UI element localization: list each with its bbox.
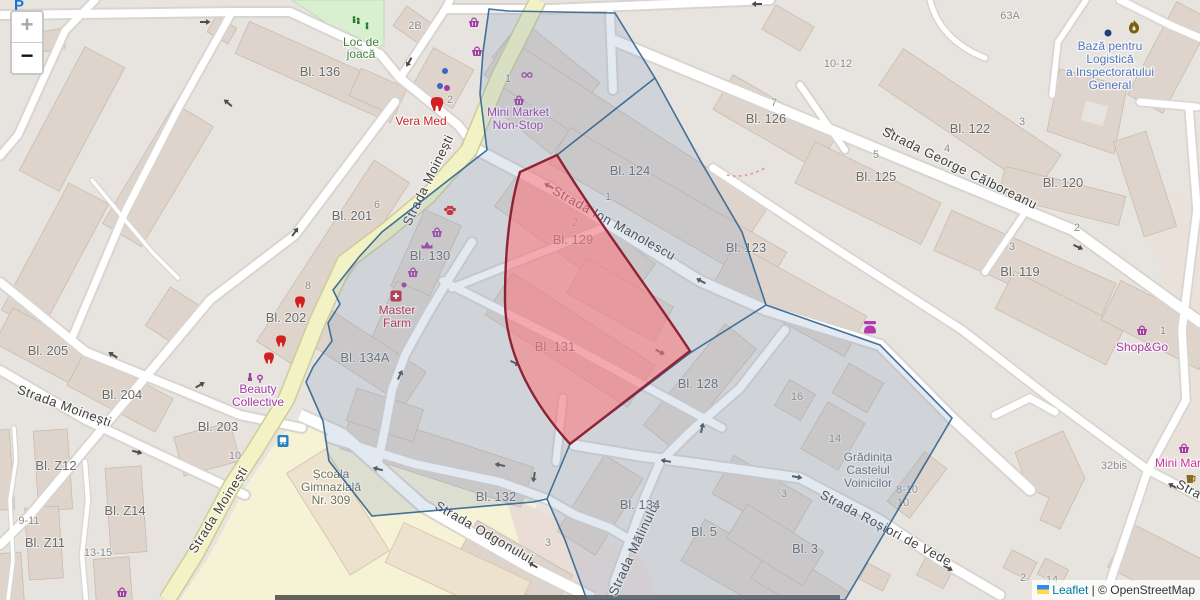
svg-text:2: 2 xyxy=(1020,572,1026,584)
svg-text:General: General xyxy=(1089,78,1132,92)
svg-text:Bl. 136: Bl. 136 xyxy=(300,64,340,79)
svg-text:3: 3 xyxy=(1019,116,1025,128)
svg-text:Bl. 205: Bl. 205 xyxy=(28,343,68,358)
svg-text:Bl. 203: Bl. 203 xyxy=(198,419,238,434)
svg-text:Bl. 119: Bl. 119 xyxy=(1000,264,1040,279)
svg-text:Bl. Z14: Bl. Z14 xyxy=(104,503,145,518)
svg-text:9-11: 9-11 xyxy=(18,515,39,527)
svg-text:Beauty: Beauty xyxy=(239,382,276,396)
svg-text:Bl. 202: Bl. 202 xyxy=(266,310,306,325)
svg-text:Logistică: Logistică xyxy=(1086,52,1134,66)
svg-text:4: 4 xyxy=(944,143,950,155)
svg-text:13-15: 13-15 xyxy=(84,547,112,559)
svg-text:6: 6 xyxy=(374,199,380,211)
svg-text:1: 1 xyxy=(1160,325,1166,337)
svg-text:Mini Mark: Mini Mark xyxy=(1155,456,1200,470)
svg-text:2: 2 xyxy=(1074,222,1080,234)
svg-text:8: 8 xyxy=(305,280,311,292)
svg-text:Bază pentru: Bază pentru xyxy=(1078,39,1143,53)
svg-text:2B: 2B xyxy=(408,20,421,32)
svg-text:a Inspectoratului: a Inspectoratului xyxy=(1066,65,1154,79)
svg-text:63A: 63A xyxy=(1000,10,1020,22)
svg-text:Vera Med: Vera Med xyxy=(395,114,446,128)
svg-text:Bl. 122: Bl. 122 xyxy=(950,121,990,136)
svg-text:Bl. Z12: Bl. Z12 xyxy=(35,458,76,473)
svg-text:3: 3 xyxy=(1009,241,1015,253)
svg-text:10: 10 xyxy=(229,450,241,462)
svg-text:Bl. Z11: Bl. Z11 xyxy=(25,535,65,550)
svg-text:Bl. 204: Bl. 204 xyxy=(102,387,142,402)
svg-text:3: 3 xyxy=(545,537,551,549)
svg-text:joacă: joacă xyxy=(346,47,376,61)
svg-text:Bl. 201: Bl. 201 xyxy=(332,208,372,223)
svg-text:7: 7 xyxy=(771,97,777,109)
svg-text:Bl. 125: Bl. 125 xyxy=(856,169,896,184)
svg-text:Nr. 309: Nr. 309 xyxy=(312,493,351,507)
svg-text:Bl. 126: Bl. 126 xyxy=(746,111,786,126)
svg-text:2: 2 xyxy=(447,94,453,106)
svg-text:Collective: Collective xyxy=(232,395,284,409)
svg-text:10-12: 10-12 xyxy=(824,58,852,70)
svg-text:32bis: 32bis xyxy=(1101,460,1128,472)
svg-text:Bl. 120: Bl. 120 xyxy=(1043,175,1083,190)
svg-text:Shop&Go: Shop&Go xyxy=(1116,340,1168,354)
svg-text:5: 5 xyxy=(873,149,879,161)
